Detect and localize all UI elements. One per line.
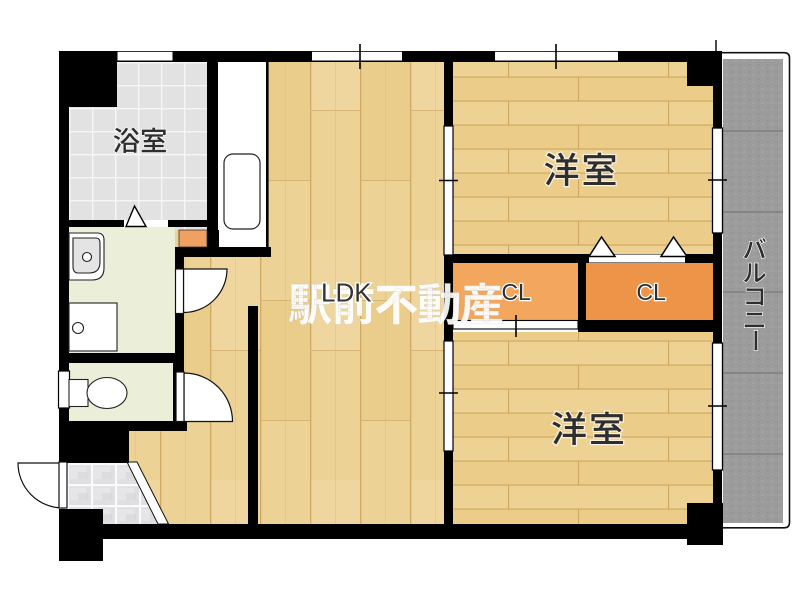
- svg-text:CL: CL: [637, 279, 667, 305]
- svg-text:LDK: LDK: [321, 278, 372, 308]
- svg-text:CL: CL: [502, 279, 532, 305]
